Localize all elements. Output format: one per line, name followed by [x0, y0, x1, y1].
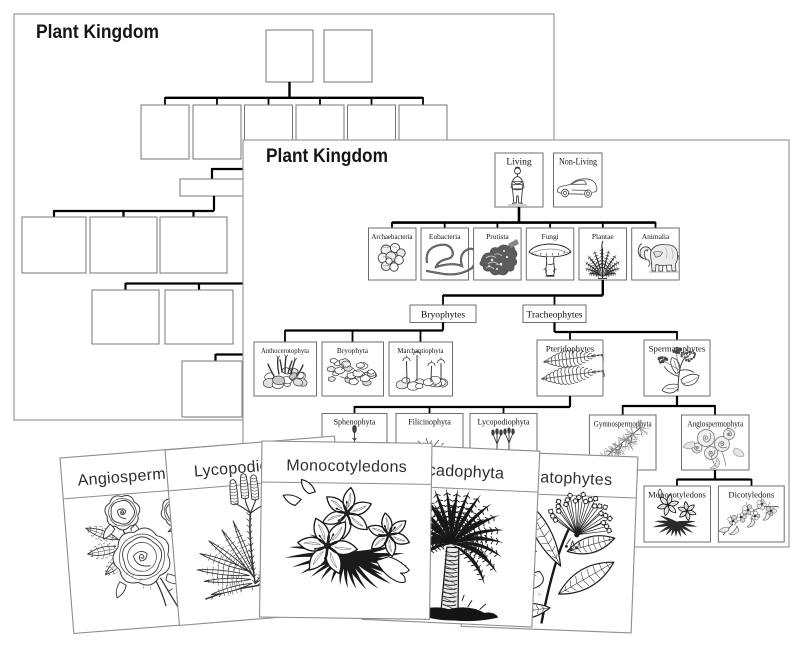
svg-text:Pteridophytes: Pteridophytes — [546, 344, 595, 354]
svg-text:Plant Kingdom: Plant Kingdom — [266, 145, 388, 167]
svg-text:Fungi: Fungi — [541, 232, 558, 241]
svg-text:Protista: Protista — [486, 232, 509, 241]
svg-text:Eubacteria: Eubacteria — [429, 232, 461, 241]
svg-text:Monocotyledons: Monocotyledons — [286, 457, 407, 476]
svg-text:Tracheophytes: Tracheophytes — [526, 310, 582, 321]
svg-text:Filicinophyta: Filicinophyta — [408, 418, 451, 427]
svg-text:Dicotyledons: Dicotyledons — [728, 490, 774, 500]
svg-text:Plant Kingdom: Plant Kingdom — [36, 21, 159, 43]
svg-text:Lycopodiophyta: Lycopodiophyta — [478, 418, 530, 427]
svg-text:Marchantiophyta: Marchantiophyta — [398, 346, 445, 355]
svg-text:Archaebacteria: Archaebacteria — [372, 232, 414, 241]
svg-text:Anthocerotophyta: Anthocerotophyta — [261, 346, 310, 355]
svg-text:Bryophyta: Bryophyta — [337, 346, 369, 355]
svg-text:Non-Living: Non-Living — [559, 158, 597, 168]
svg-text:Angiospermophyta: Angiospermophyta — [687, 420, 743, 429]
svg-text:Monocotyledons: Monocotyledons — [648, 490, 706, 500]
svg-text:Plantae: Plantae — [592, 232, 614, 241]
svg-text:Living: Living — [506, 158, 532, 168]
svg-text:Bryophytes: Bryophytes — [421, 310, 466, 321]
svg-text:Animalia: Animalia — [642, 232, 670, 241]
